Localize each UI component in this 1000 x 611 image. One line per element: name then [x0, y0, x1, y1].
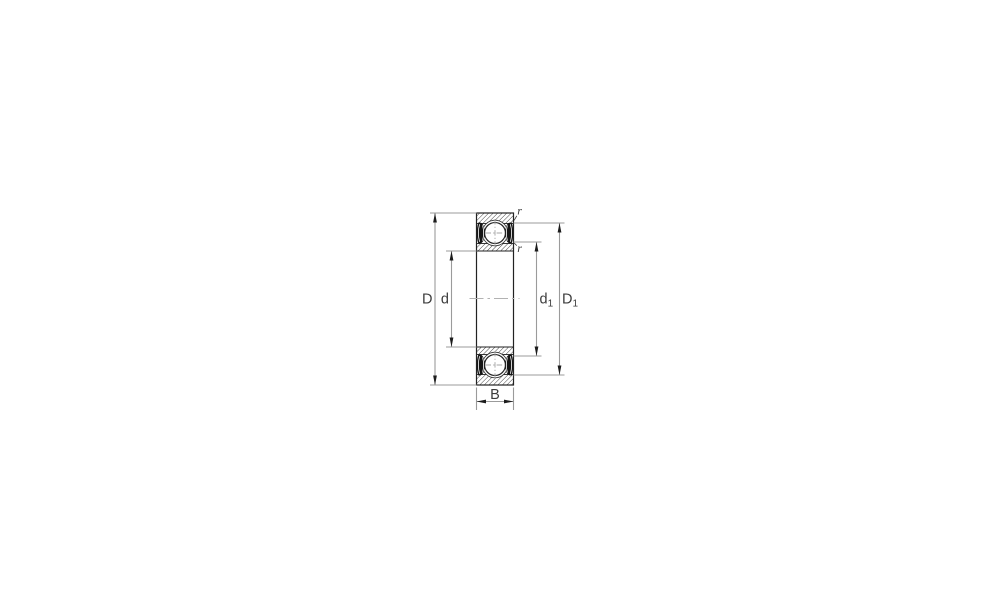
arrow-d-down [450, 338, 454, 348]
label-fillet-r-bottom: r [517, 241, 522, 255]
arrow-d-up [450, 251, 454, 261]
arrow-B-left [477, 400, 487, 404]
label-outer-diameter-D: D [422, 292, 432, 308]
label-D1-subscript: 1 [572, 299, 578, 310]
label-d1-base: d [540, 292, 548, 308]
drawing-canvas: D d d1 D1 B r r [0, 0, 1000, 611]
label-shoulder-diameter-d1: d1 [540, 292, 554, 310]
label-D1-base: D [562, 292, 572, 308]
arrow-d1-down [535, 347, 539, 357]
arrow-d1-up [535, 242, 539, 252]
bearing-cross-section [470, 213, 520, 385]
arrow-B-right [504, 400, 514, 404]
label-shoulder-diameter-D1: D1 [562, 292, 578, 310]
arrow-D-down [433, 376, 437, 386]
label-bore-diameter-d: d [441, 292, 449, 308]
arrow-D1-up [558, 223, 562, 233]
arrow-D1-down [558, 366, 562, 376]
arrow-D-up [433, 213, 437, 223]
label-fillet-r-top: r [517, 204, 522, 218]
bearing-dimension-drawing: D d d1 D1 B r r [0, 0, 1000, 611]
label-d1-subscript: 1 [548, 299, 554, 310]
label-width-B: B [490, 387, 500, 403]
